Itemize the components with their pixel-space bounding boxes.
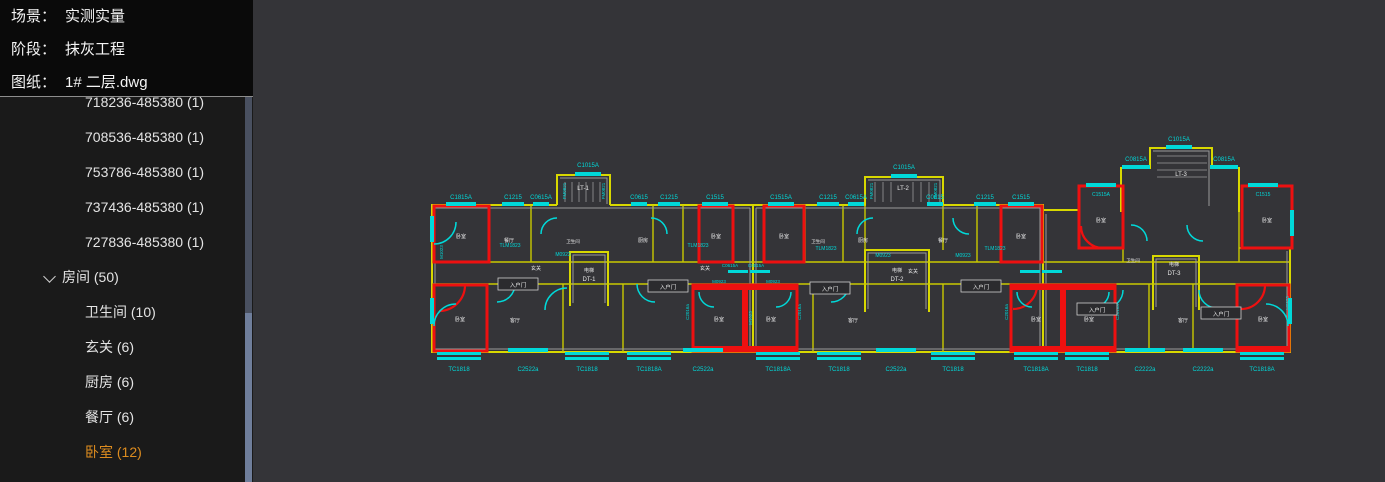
- cad-label: C1515: [706, 195, 724, 201]
- window-glyph: [1183, 348, 1223, 352]
- window-glyph: [1065, 357, 1109, 360]
- cad-label: C0815A: [1213, 157, 1235, 163]
- tree-item-zone[interactable]: 708536-485380 (1): [0, 119, 245, 154]
- cad-label: FM0821: [601, 182, 606, 199]
- cad-label: 客厅: [1178, 317, 1188, 324]
- cad-label: C0515A: [748, 263, 764, 268]
- cad-label: 厨房: [638, 237, 648, 244]
- cad-label: 玄关: [700, 265, 710, 272]
- cad-label: M0923: [875, 253, 891, 259]
- cad-label: TC1818A: [765, 367, 790, 373]
- cad-label: DT-3: [1167, 271, 1181, 277]
- window-glyph: [702, 202, 728, 206]
- window-glyph: [1086, 183, 1116, 187]
- cad-label: DT-1: [582, 277, 596, 283]
- drawing-line: 图纸：1# 二层.dwg: [0, 66, 253, 99]
- window-glyph: [876, 348, 916, 352]
- cad-label: 卫生间: [566, 238, 580, 245]
- cad-label: 厨房: [858, 237, 868, 244]
- cad-label: 卧室: [711, 233, 721, 240]
- window-glyph: [817, 357, 861, 360]
- cad-label: C1015A: [893, 165, 915, 171]
- cad-label: 卧室: [1262, 217, 1272, 224]
- window-glyph: [627, 352, 671, 355]
- cad-label: 客厅: [510, 317, 520, 324]
- tree-item-label: 卧室 (12): [0, 442, 142, 462]
- cad-label: 客厅: [848, 317, 858, 324]
- stage-label: 阶段：: [11, 41, 56, 58]
- window-glyph: [1042, 270, 1062, 273]
- cad-label: C1515A: [770, 195, 792, 201]
- drawing-value: 1# 二层.dwg: [65, 74, 148, 91]
- tree-item-foyer[interactable]: 玄关 (6): [0, 329, 245, 364]
- cad-label: DT-2: [890, 277, 904, 283]
- tree-group-rooms[interactable]: 房间 (50): [0, 259, 245, 294]
- cad-label: 入户门: [510, 281, 527, 289]
- cad-label: 入户门: [973, 283, 990, 291]
- cad-label: 入户门: [822, 285, 839, 293]
- window-glyph: [631, 202, 647, 206]
- cad-label: 餐厅: [504, 237, 514, 244]
- cad-label: M0923: [766, 279, 780, 284]
- window-glyph: [1014, 357, 1058, 360]
- cad-label: TLM1823: [815, 246, 836, 252]
- cad-label: C2522a: [885, 367, 907, 373]
- cad-label: M0923: [1285, 296, 1290, 310]
- tree-item-label: 餐厅 (6): [0, 407, 134, 427]
- tree-item-label: 753786-485380 (1): [0, 164, 204, 180]
- window-glyph: [1065, 352, 1109, 355]
- window-glyph: [756, 352, 800, 355]
- cad-label: TC1818: [828, 367, 850, 373]
- window-glyph: [1290, 210, 1294, 236]
- floor-plan: C1815AC1215C0615AC1015AC0615C1215C1515C1…: [253, 0, 1385, 482]
- cad-label: C0615A: [722, 263, 738, 268]
- window-glyph: [1122, 165, 1150, 169]
- window-glyph: [1166, 145, 1192, 149]
- cad-viewport[interactable]: C1815AC1215C0615AC1015AC0615C1215C1515C1…: [253, 0, 1385, 482]
- tree-group-label: 房间 (50): [0, 267, 119, 287]
- cad-label: 卧室: [1258, 316, 1268, 323]
- scene-value: 实测实量: [65, 8, 125, 25]
- cad-label: C1015A: [1168, 137, 1190, 143]
- cad-label: 入户门: [1213, 310, 1230, 318]
- window-glyph: [750, 270, 770, 273]
- cad-label: C1515A: [1092, 192, 1111, 198]
- sidebar-scrollbar-thumb[interactable]: [245, 313, 252, 482]
- stage-value: 抹灰工程: [65, 41, 125, 58]
- cad-label: 电梯: [892, 267, 902, 274]
- window-glyph: [565, 352, 609, 355]
- cad-label: M0923: [712, 279, 726, 284]
- cad-label: 卧室: [1096, 217, 1106, 224]
- tree-item-dining[interactable]: 餐厅 (6): [0, 399, 245, 434]
- window-glyph: [891, 174, 917, 178]
- cad-label: C0615A: [530, 195, 552, 201]
- tree-item-label: 708536-485380 (1): [0, 129, 204, 145]
- cad-label: TC1818: [576, 367, 598, 373]
- cad-label: 电梯: [584, 267, 594, 274]
- cad-label: 卧室: [766, 316, 776, 323]
- cad-label: 卧室: [1031, 316, 1041, 323]
- cad-label: 电梯: [1169, 261, 1179, 268]
- cad-label: 餐厅: [938, 237, 948, 244]
- cad-label: TLM1823: [687, 243, 708, 249]
- window-glyph: [575, 172, 601, 176]
- window-glyph: [974, 202, 996, 206]
- cad-label: M0923: [555, 252, 571, 258]
- window-glyph: [446, 202, 476, 206]
- cad-label: M1023: [439, 245, 444, 259]
- window-glyph: [817, 202, 839, 206]
- cad-label: C2222a: [1134, 367, 1156, 373]
- cad-label: 卫生间: [1126, 257, 1140, 264]
- cad-label: 卧室: [1016, 233, 1026, 240]
- cad-label: FM0821: [933, 182, 938, 199]
- window-glyph: [430, 216, 434, 242]
- window-glyph: [931, 357, 975, 360]
- tree-item-zone[interactable]: 727836-485380 (1): [0, 224, 245, 259]
- cad-label: C1215: [819, 195, 837, 201]
- window-glyph: [1125, 348, 1165, 352]
- window-glyph: [437, 357, 481, 360]
- sidebar-scrollbar[interactable]: [245, 97, 252, 482]
- window-glyph: [1210, 165, 1238, 169]
- window-glyph: [430, 298, 434, 324]
- drawing-label: 图纸：: [11, 74, 56, 91]
- stage-line: 阶段：抹灰工程: [0, 33, 253, 66]
- cad-label: TC1818: [1076, 367, 1098, 373]
- cad-label: 卧室: [456, 233, 466, 240]
- cad-label: C2016a: [1004, 304, 1009, 320]
- cad-label: C0615: [630, 195, 648, 201]
- cad-label: 玄关: [531, 265, 541, 272]
- tree-item-kitchen[interactable]: 厨房 (6): [0, 364, 245, 399]
- cad-label: TC1818: [448, 367, 470, 373]
- cad-label: TC1818: [942, 367, 964, 373]
- cad-label: TC1818A: [1249, 367, 1274, 373]
- tree-item-zone[interactable]: 753786-485380 (1): [0, 154, 245, 189]
- cad-label: C1515: [1012, 195, 1030, 201]
- cad-label: 卧室: [455, 316, 465, 323]
- window-glyph: [728, 270, 748, 273]
- tree-item-zone[interactable]: 737436-485380 (1): [0, 189, 245, 224]
- window-glyph: [437, 352, 481, 355]
- scene-line: 场景：实测实量: [0, 0, 253, 33]
- cad-label: 入户门: [1089, 306, 1106, 314]
- window-glyph: [817, 352, 861, 355]
- cad-label: M1023: [748, 311, 753, 325]
- window-glyph: [565, 357, 609, 360]
- cad-label: 卧室: [779, 233, 789, 240]
- tree-item-bedroom-selected[interactable]: 卧室 (12): [0, 434, 245, 469]
- cad-label: M0923: [955, 253, 971, 259]
- tree-item-label: 737436-485380 (1): [0, 199, 204, 215]
- scene-label: 场景：: [11, 8, 56, 25]
- cad-label: 卧室: [1084, 316, 1094, 323]
- tree-item-label: 卫生间 (10): [0, 302, 156, 322]
- app-window: C1815AC1215C0615AC1015AC0615C1215C1515C1…: [0, 0, 1385, 482]
- window-glyph: [658, 202, 680, 206]
- window-glyph: [768, 202, 794, 206]
- cad-label: C2016a: [685, 304, 690, 320]
- window-glyph: [627, 357, 671, 360]
- cad-label: C2016a: [797, 304, 802, 320]
- cad-label: TC1818A: [636, 367, 661, 373]
- tree-item-bathroom[interactable]: 卫生间 (10): [0, 294, 245, 329]
- cad-label: C2522a: [692, 367, 714, 373]
- drawing-info-header: 场景：实测实量 阶段：抹灰工程 图纸：1# 二层.dwg: [0, 0, 253, 97]
- window-glyph: [508, 348, 548, 352]
- tree-item-label: 厨房 (6): [0, 372, 134, 392]
- window-glyph: [931, 352, 975, 355]
- cad-label: C1215: [504, 195, 522, 201]
- cad-label: FM0821: [869, 182, 874, 199]
- cad-label: 卫生间: [811, 238, 825, 245]
- cad-label: 玄关: [908, 268, 918, 275]
- cad-label: TC1818A: [1023, 367, 1048, 373]
- cad-label: C0815A: [1125, 157, 1147, 163]
- plan-door-arcs: [434, 218, 1288, 326]
- cad-label: TLM1823: [984, 246, 1005, 252]
- window-glyph: [1008, 202, 1034, 206]
- cad-label: FM0821: [562, 182, 567, 199]
- cad-label: LT-1: [577, 186, 589, 192]
- tree-item-label: 727836-485380 (1): [0, 234, 204, 250]
- window-glyph: [1240, 357, 1284, 360]
- window-glyph: [683, 348, 723, 352]
- window-glyph: [1240, 352, 1284, 355]
- cad-label: C0615A: [845, 195, 867, 201]
- cad-label: C2222a: [1192, 367, 1214, 373]
- window-glyph: [927, 202, 943, 206]
- cad-label: LT-2: [897, 186, 909, 192]
- window-glyph: [1248, 183, 1278, 187]
- plan-partitions: [432, 205, 1290, 352]
- window-glyph: [1020, 270, 1040, 273]
- cad-label: 卧室: [714, 316, 724, 323]
- cad-label: C1215: [976, 195, 994, 201]
- window-glyph: [848, 202, 864, 206]
- tree-item-label: 玄关 (6): [0, 337, 134, 357]
- window-glyph: [1014, 352, 1058, 355]
- cad-label: LT-3: [1175, 172, 1187, 178]
- cad-label: C1515: [1256, 192, 1271, 198]
- cad-label: C1815A: [450, 195, 472, 201]
- window-glyph: [756, 357, 800, 360]
- window-glyph: [502, 202, 524, 206]
- plan-walls-yellow: [432, 148, 1290, 352]
- cad-label: 入户门: [660, 283, 677, 291]
- window-glyph: [533, 202, 549, 206]
- cad-label: C1215: [660, 195, 678, 201]
- cad-label: C1015A: [577, 163, 599, 169]
- cad-label: C2522a: [517, 367, 539, 373]
